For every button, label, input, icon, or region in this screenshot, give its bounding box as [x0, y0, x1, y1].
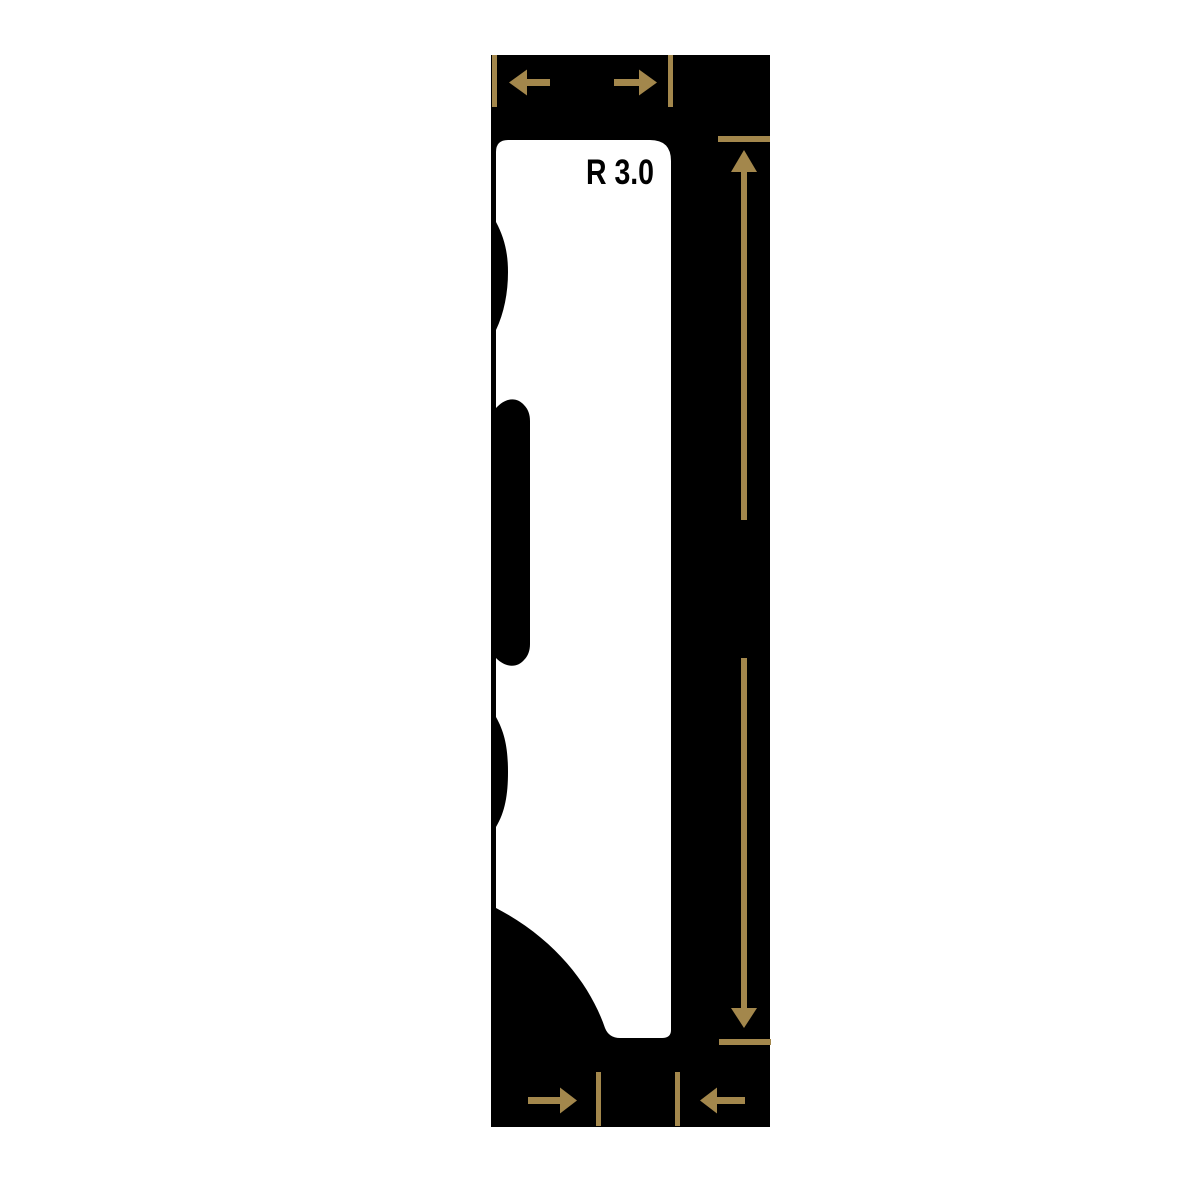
molding-profile-diagram: R 3.0 — [0, 0, 1200, 1200]
extension-line-right — [668, 55, 673, 107]
arrow-shaft — [717, 1097, 745, 1104]
extension-line-bottom — [719, 1039, 771, 1045]
extension-line-top — [718, 136, 770, 142]
extension-line-right — [675, 1072, 680, 1126]
arrow-shaft — [741, 658, 747, 1008]
diagram-canvas: R 3.0 — [0, 0, 1200, 1200]
arrow-shaft — [528, 1097, 560, 1104]
radius-label: R 3.0 — [586, 153, 654, 192]
arrow-shaft — [741, 172, 747, 520]
arrow-shaft — [527, 79, 550, 86]
extension-line-left — [492, 55, 497, 107]
extension-line-left — [596, 1072, 601, 1126]
arrow-shaft — [614, 79, 639, 86]
